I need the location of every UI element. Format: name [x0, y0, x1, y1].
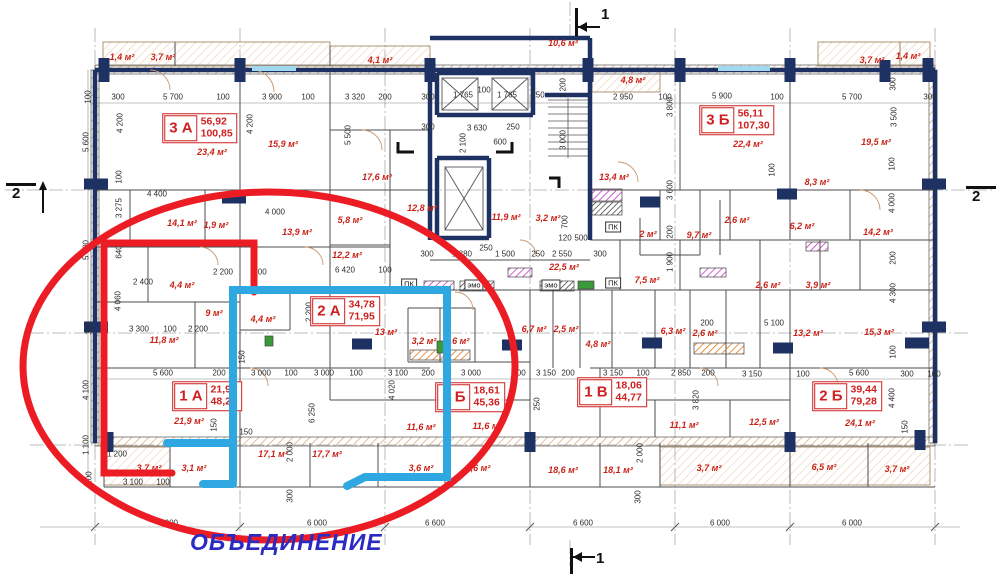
room-area-label: 12,8 м² — [407, 203, 437, 213]
dimension-label: 100 — [84, 90, 93, 103]
room-area-label: 1,4 м² — [110, 52, 135, 62]
dimension-label: 300 — [420, 250, 433, 259]
dimension-label: 2 200 — [213, 268, 233, 277]
dimension-label: 3 600 — [666, 180, 675, 200]
apartment-tag: 1 Б18,6145,36 — [435, 382, 505, 412]
room-area-label: 3,9 м² — [806, 280, 831, 290]
apartment-code: 3 А — [164, 115, 197, 141]
apartment-tag: 3 Б56,11107,30 — [699, 105, 774, 135]
dimension-label: 3 300 — [129, 325, 149, 334]
room-area-label: 8,3 м² — [805, 177, 830, 187]
apartment-total-area: 48,23 — [211, 396, 237, 408]
tech-label: ПК — [401, 279, 417, 290]
dimension-label: 1 200 — [559, 78, 568, 98]
apartment-code: 2 Б — [814, 383, 847, 409]
room-area-label: 4,8 м² — [586, 339, 611, 349]
dimension-label: 2 100 — [459, 133, 468, 153]
dimension-label: 4 060 — [114, 291, 123, 311]
apartment-total-area: 100,85 — [201, 128, 233, 140]
dimension-label: 300 — [85, 321, 94, 334]
dimension-label: 3 500 — [890, 107, 899, 127]
dimension-label: 6 600 — [425, 519, 445, 528]
room-area-label: 13,2 м² — [793, 328, 823, 338]
dimension-label: 5 600 — [82, 132, 91, 152]
room-area-label: 3,1 м² — [182, 463, 207, 473]
dimension-label: 100 — [115, 170, 124, 183]
dimension-label: 100 — [796, 370, 809, 379]
apartment-tag: 2 Б39,4479,28 — [812, 381, 882, 411]
dimension-label: 150 — [239, 428, 252, 437]
room-area-label: 3,7 м² — [885, 464, 910, 474]
dimension-label: 6 000 — [158, 519, 178, 528]
apartment-code: 1 Б — [437, 384, 470, 410]
dimension-label: 3 320 — [345, 93, 365, 102]
dimension-label: 6 600 — [573, 519, 593, 528]
apartment-code: 1 А — [174, 383, 207, 409]
room-area-label: 4,4 м² — [251, 314, 276, 324]
labels-layer: 1,4 м²3,7 м²4,1 м²10,6 м²4,8 м²3,7 м²1,4… — [0, 0, 999, 574]
apartment-code: 1 В — [579, 379, 612, 405]
room-area-label: 9 м² — [205, 308, 222, 318]
dimension-label: 5 600 — [82, 240, 91, 260]
room-area-label: 15,3 м² — [864, 327, 894, 337]
dimension-label: 100 — [512, 369, 525, 378]
room-area-label: 4,6 м² — [445, 336, 470, 346]
room-area-label: 17,7 м² — [312, 449, 342, 459]
room-area-label: 19,5 м² — [861, 137, 891, 147]
dimension-label: 5 100 — [764, 319, 784, 328]
dimension-label: 100 — [349, 369, 362, 378]
floor-plan-page: 1,4 м²3,7 м²4,1 м²10,6 м²4,8 м²3,7 м²1,4… — [0, 0, 999, 574]
room-area-label: 6,2 м² — [790, 221, 815, 231]
dimension-label: 1 900 — [666, 252, 675, 272]
apartment-living-area: 39,44 — [851, 384, 877, 396]
dimension-label: 100 — [301, 93, 314, 102]
dimension-label: 4 200 — [116, 113, 125, 133]
room-area-label: 5,8 м² — [338, 215, 363, 225]
dimension-label: 2 000 — [286, 442, 295, 462]
apartment-tag: 2 А34,7871,95 — [310, 296, 380, 326]
room-area-label: 3,2 м² — [536, 213, 561, 223]
dimension-label: 4 000 — [888, 193, 897, 213]
room-area-label: 23,4 м² — [197, 147, 227, 157]
dimension-label: 100 — [85, 471, 94, 484]
dimension-label: 6 250 — [308, 403, 317, 423]
dimension-label: 1 500 — [495, 250, 515, 259]
dimension-label: 300 — [634, 490, 643, 503]
room-area-label: 17,6 м² — [362, 172, 392, 182]
room-area-label: 6,5 м² — [812, 462, 837, 472]
tech-label: ПК — [605, 278, 621, 289]
tech-label: эмо — [464, 280, 483, 291]
dimension-label: 1 765 — [453, 91, 473, 100]
dimension-label: 4 300 — [889, 283, 898, 303]
room-area-label: 7,5 м² — [635, 275, 660, 285]
dimension-label: 300 — [889, 77, 898, 90]
room-area-label: 9,7 м² — [687, 230, 712, 240]
dimension-label: 5 700 — [842, 93, 862, 102]
apartment-tag: 3 А56,92100,85 — [162, 113, 237, 143]
dimension-label: 200 — [421, 369, 434, 378]
room-area-label: 13,4 м² — [599, 172, 629, 182]
apartment-living-area: 34,78 — [349, 299, 375, 311]
dimension-label: 300 — [421, 93, 434, 102]
room-area-label: 3,6 м² — [409, 463, 434, 473]
dimension-label: 100 — [156, 478, 169, 487]
room-area-label: 12,5 м² — [749, 417, 779, 427]
room-area-label: 6,7 м² — [522, 324, 547, 334]
dimension-label: 250 — [531, 91, 544, 100]
dimension-label: 100 — [927, 370, 940, 379]
room-area-label: 3,7 м² — [697, 463, 722, 473]
dimension-label: 3 100 — [388, 369, 408, 378]
dimension-label: 3 000 — [314, 369, 334, 378]
dimension-label: 6 000 — [307, 519, 327, 528]
room-area-label: 3,7 м² — [151, 52, 176, 62]
room-area-label: 3,2 м² — [412, 336, 437, 346]
apartment-code: 3 Б — [701, 107, 734, 133]
dimension-label: 4 200 — [246, 114, 255, 134]
dimension-label: 200 — [889, 251, 898, 264]
dimension-label: 5 600 — [153, 369, 173, 378]
room-area-label: 1,9 м² — [204, 220, 229, 230]
apartment-total-area: 107,30 — [738, 120, 770, 132]
room-area-label: 18,6 м² — [548, 465, 578, 475]
dimension-label: 4 400 — [888, 388, 897, 408]
dimension-label: 100 — [163, 325, 176, 334]
room-area-label: 2,6 м² — [693, 328, 718, 338]
dimension-label: 3 900 — [262, 93, 282, 102]
room-area-label: 11,8 м² — [149, 335, 178, 345]
dimension-label: 3 150 — [742, 370, 762, 379]
dimension-label: 4 020 — [388, 380, 397, 400]
dimension-label: 250 — [479, 244, 492, 253]
room-area-label: 4,1 м² — [368, 55, 393, 65]
room-area-label: 10,6 м² — [548, 38, 578, 48]
dimension-label: 300 — [421, 123, 434, 132]
room-area-label: 15,9 м² — [268, 139, 298, 149]
dimension-label: 250 — [533, 397, 542, 410]
room-area-label: 21,9 м² — [174, 416, 204, 426]
room-area-label: 24,1 м² — [845, 418, 875, 428]
dimension-label: 200 — [378, 93, 391, 102]
room-area-label: 11,6 м² — [472, 421, 501, 431]
dimension-label: 200 — [666, 225, 675, 238]
dimension-label: 300 — [286, 489, 295, 502]
room-area-label: 22,4 м² — [733, 139, 763, 149]
room-area-label: 11,1 м² — [669, 420, 698, 430]
dimension-label: 300 — [593, 250, 606, 259]
dimension-label: 5 700 — [163, 93, 183, 102]
dimension-label: 3 800 — [666, 97, 675, 117]
dimension-label: 250 — [531, 250, 544, 259]
apartment-living-area: 21,92 — [211, 384, 237, 396]
room-area-label: 4,8 м² — [621, 75, 646, 85]
dimension-label: 300 — [923, 93, 936, 102]
room-area-label: 2,5 м² — [554, 324, 579, 334]
dimension-label: 100 — [889, 345, 898, 358]
dimension-label: 1 880 — [452, 250, 472, 259]
merge-annotation-text: ОБЪЕДИНЕНИЕ — [190, 529, 383, 556]
dimension-label: 100 — [284, 369, 297, 378]
dimension-label: 200 — [701, 369, 714, 378]
dimension-label: 300 — [111, 93, 124, 102]
dimension-label: 3 150 — [603, 369, 623, 378]
apartment-tag: 1 В18,0644,77 — [577, 377, 647, 407]
apartment-total-area: 44,77 — [616, 392, 642, 404]
dimension-label: 6 420 — [335, 266, 355, 275]
dimension-label: 100 — [477, 86, 490, 95]
dimension-label: 640 — [115, 245, 124, 258]
tech-label: ПК — [605, 222, 621, 233]
dimension-label: 150 — [901, 420, 910, 433]
room-area-label: 12,2 м² — [332, 250, 362, 260]
dimension-label: 100 — [770, 93, 783, 102]
dimension-label: 3 000 — [559, 130, 568, 150]
tech-label: эмо — [541, 280, 560, 291]
dimension-label: 5 600 — [849, 369, 869, 378]
dimension-label: 1 765 — [497, 91, 517, 100]
room-area-label: 22,5 м² — [549, 262, 579, 272]
dimension-label: 700 — [561, 215, 570, 228]
room-area-label: 13 м² — [375, 327, 397, 337]
apartment-living-area: 56,11 — [738, 108, 770, 120]
room-area-label: 3,7 м² — [860, 55, 885, 65]
apartment-living-area: 18,61 — [474, 385, 500, 397]
apartment-total-area: 45,36 — [474, 397, 500, 409]
dimension-label: 200 — [253, 268, 266, 277]
dimension-label: 3 275 — [115, 198, 124, 218]
dimension-label: 200 — [700, 319, 713, 328]
room-area-label: 4,4 м² — [170, 280, 195, 290]
dimension-label: 3 000 — [461, 369, 481, 378]
dimension-label: 100 — [768, 163, 777, 176]
room-area-label: 3,7 м² — [137, 463, 162, 473]
dimension-label: 1 100 — [82, 435, 91, 455]
dimension-label: 2 000 — [636, 443, 645, 463]
dimension-label: 2 950 — [613, 93, 633, 102]
room-area-label: 2,6 м² — [725, 215, 750, 225]
room-area-label: 1,4 м² — [896, 51, 921, 61]
room-area-label: 13,9 м² — [282, 227, 312, 237]
room-area-label: 2 м² — [639, 229, 656, 239]
room-area-label: 14,2 м² — [863, 227, 893, 237]
apartment-living-area: 56,92 — [201, 116, 233, 128]
apartment-total-area: 71,95 — [349, 311, 375, 323]
dimension-label: 150 — [210, 418, 219, 431]
dimension-label: 2 200 — [188, 325, 208, 334]
dimension-label: 5 900 — [712, 92, 732, 101]
apartment-total-area: 79,28 — [851, 396, 877, 408]
dimension-label: 3 000 — [251, 369, 271, 378]
dimension-label: 4 000 — [265, 208, 285, 217]
dimension-label: 100 — [636, 369, 649, 378]
dimension-label: 2 550 — [552, 250, 572, 259]
dimension-label: 2 400 — [133, 278, 153, 287]
dimension-label: 6 000 — [710, 519, 730, 528]
dimension-label: 3 820 — [692, 390, 701, 410]
room-area-label: 6,3 м² — [661, 326, 686, 336]
apartment-tag: 1 А21,9248,23 — [172, 381, 242, 411]
dimension-label: 1 200 — [107, 450, 127, 459]
dimension-label: 4 100 — [82, 380, 91, 400]
dimension-label: 6 000 — [842, 519, 862, 528]
room-area-label: 17,1 м² — [258, 449, 288, 459]
dimension-label: 100 — [378, 266, 391, 275]
room-area-label: 11,6 м² — [406, 422, 435, 432]
room-area-label: 3,6 м² — [466, 463, 491, 473]
room-area-label: 11,9 м² — [491, 212, 520, 222]
dimension-label: 3 150 — [536, 369, 556, 378]
dimension-label: 100 — [888, 157, 897, 170]
dimension-label: 3 630 — [467, 124, 487, 133]
dimension-label: 300 — [900, 370, 913, 379]
dimension-label: 3 100 — [123, 478, 143, 487]
dimension-label: 250 — [506, 123, 519, 132]
room-area-label: 18,1 м² — [603, 465, 633, 475]
dimension-label: 200 — [212, 369, 225, 378]
dimension-label: 5 500 — [344, 125, 353, 145]
dimension-label: 2 850 — [671, 369, 691, 378]
dimension-label: 500 — [574, 234, 587, 243]
dimension-label: 200 — [561, 369, 574, 378]
dimension-label: 100 — [216, 93, 229, 102]
apartment-code: 2 А — [312, 298, 345, 324]
dimension-label: 600 — [493, 138, 506, 147]
room-area-label: 14,1 м² — [167, 218, 197, 228]
dimension-label: 120 — [558, 234, 571, 243]
dimension-label: 150 — [238, 350, 247, 363]
dimension-label: 4 400 — [147, 190, 167, 199]
room-area-label: 2,6 м² — [756, 280, 781, 290]
apartment-living-area: 18,06 — [616, 380, 642, 392]
